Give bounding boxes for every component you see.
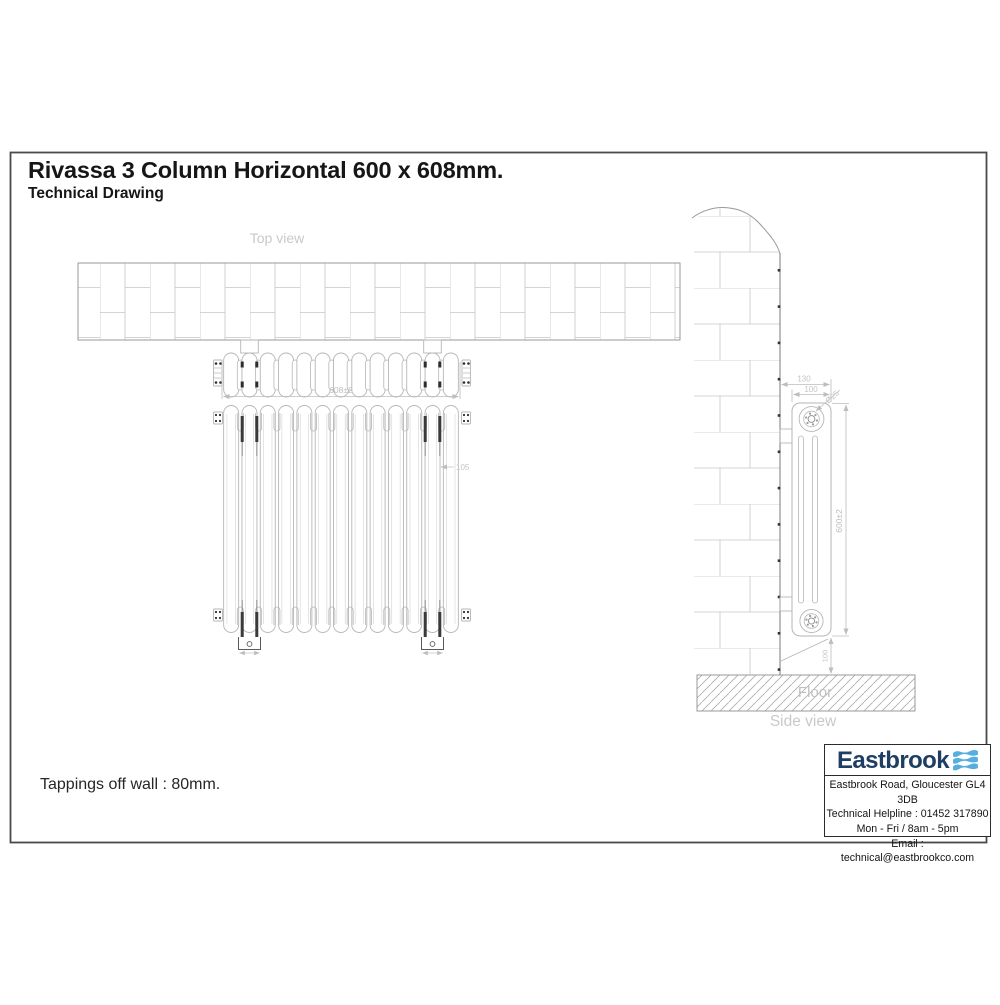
front-view-plug-marks [215,414,469,619]
title-block: Rivassa 3 Column Horizontal 600 x 608mm.… [28,157,503,203]
page-title: Rivassa 3 Column Horizontal 600 x 608mm. [28,157,503,184]
drawing-frame [11,153,987,843]
top-view-wall [78,263,680,340]
technical-drawing-page: 608±2 105 [0,0,1000,1000]
dim-floor-clearance-text: 100 [821,650,830,663]
brand-waves-icon [953,750,978,771]
tappings-note: Tappings off wall : 80mm. [40,776,220,794]
info-address: Eastbrook Road, Gloucester GL4 3DB [825,778,990,807]
side-bracket-top [780,429,792,443]
info-helpline: Technical Helpline : 01452 317890 [825,807,990,822]
dim-width-text: 608±2 [329,385,353,395]
top-view-bracket-arms [241,340,442,353]
info-email: Email : technical@eastbrookco.com [825,837,990,866]
side-view-label: Side view [770,713,837,730]
side-view-radiator [780,403,831,661]
dim-wall-to-front-text: 130 [797,375,811,384]
dim-depth-text: 100 [804,385,818,394]
manufacturer-info-box: Eastbrook Eastbrook Road, Gloucester GL4… [824,744,991,837]
front-view-end-plugs [214,412,471,621]
side-bracket-bottom [780,597,792,611]
floor-label: Floor [798,684,832,701]
side-view-wall [690,200,785,680]
brand-logo-row: Eastbrook [837,745,978,773]
dim-height-text: 600±2 [834,509,844,533]
brand-wordmark: Eastbrook [837,748,949,773]
front-view-wall-brackets [239,416,444,653]
info-hours: Mon - Fri / 8am - 5pm [825,822,990,837]
front-view-radiator-columns [224,405,459,632]
top-view-label: Top view [250,230,305,246]
page-subtitle: Technical Drawing [28,185,503,203]
dim-top-offset-text: 105 [456,463,470,472]
